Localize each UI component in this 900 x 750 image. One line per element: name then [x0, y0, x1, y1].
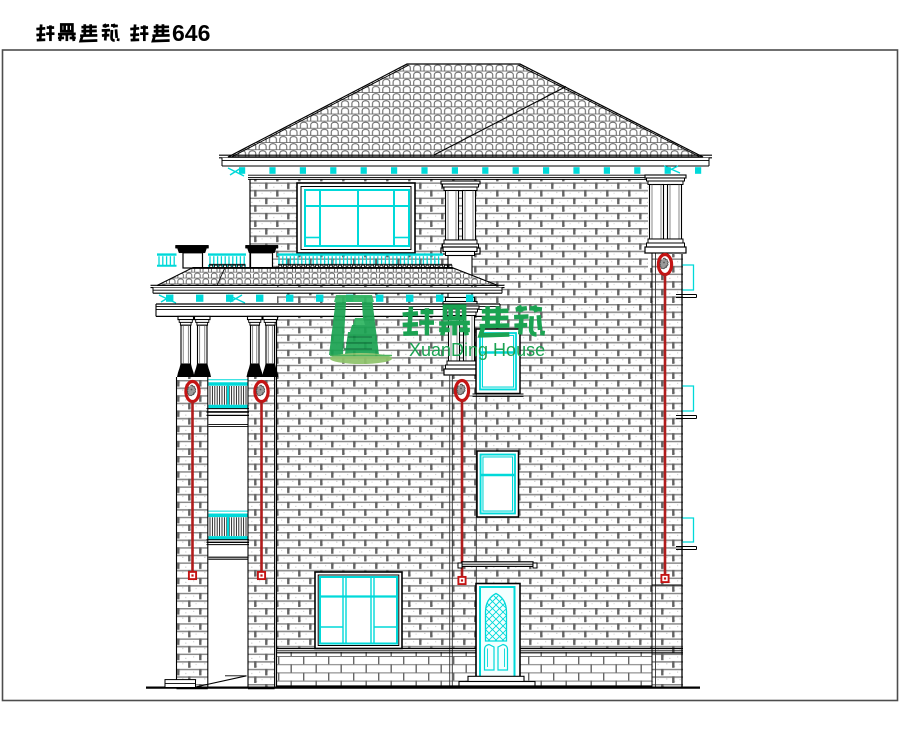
svg-text:646: 646 [172, 20, 210, 46]
svg-text:XuanDing House: XuanDing House [409, 340, 545, 360]
